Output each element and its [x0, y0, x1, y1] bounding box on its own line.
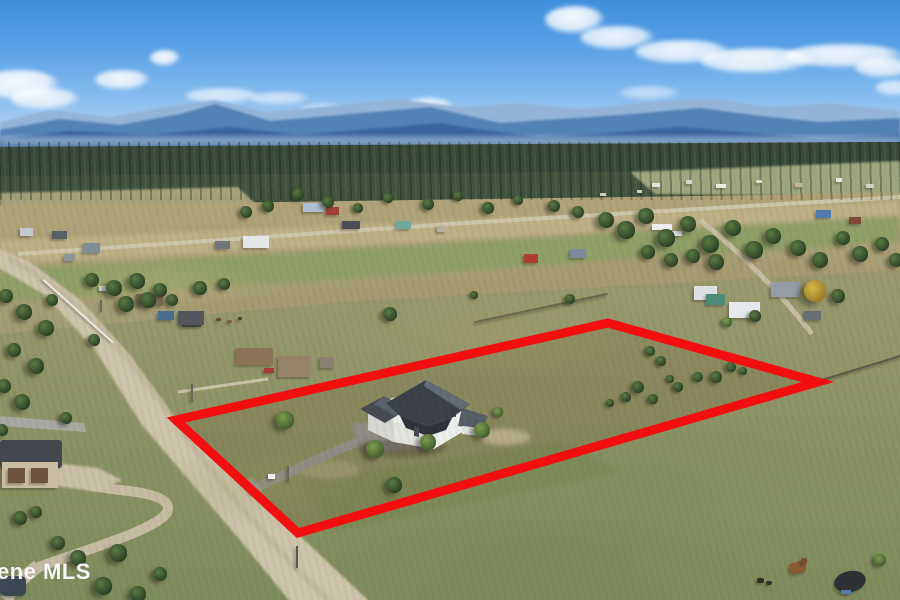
property-boundary: [176, 323, 818, 533]
overlay-svg: [0, 0, 900, 600]
mls-watermark-text: ene MLS: [0, 559, 91, 585]
aerial-property-photo: ene MLS: [0, 0, 900, 600]
